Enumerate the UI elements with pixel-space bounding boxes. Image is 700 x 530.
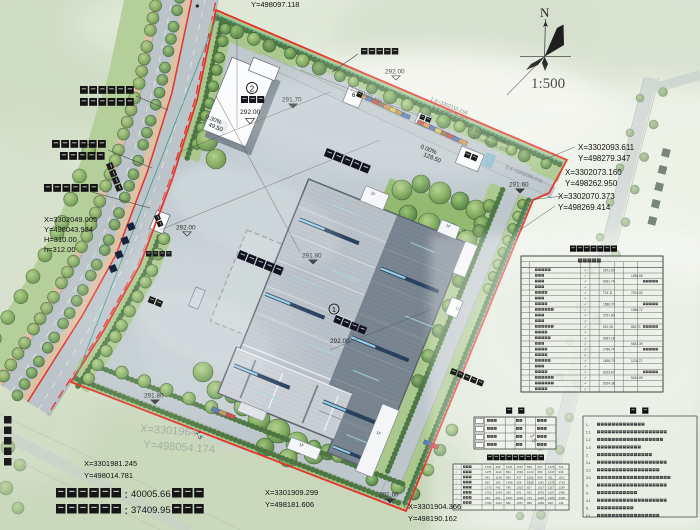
svg-text:180: 180 xyxy=(496,480,501,484)
svg-text:✓: ✓ xyxy=(584,302,587,306)
svg-text:267: 267 xyxy=(538,465,543,469)
svg-text:1101: 1101 xyxy=(559,475,566,479)
svg-text:X=3302073.160: X=3302073.160 xyxy=(565,168,622,177)
svg-text:1: 1 xyxy=(332,307,336,314)
svg-text:956: 956 xyxy=(506,475,511,479)
svg-text:Y=498279.347: Y=498279.347 xyxy=(578,154,631,163)
svg-text:1783: 1783 xyxy=(485,501,492,505)
svg-text:○: ○ xyxy=(456,475,458,479)
svg-text:652: 652 xyxy=(527,491,532,495)
svg-text:1070: 1070 xyxy=(538,491,545,495)
svg-text:1716: 1716 xyxy=(559,480,566,484)
svg-text:✓: ✓ xyxy=(584,308,587,312)
svg-text:240: 240 xyxy=(506,491,511,495)
svg-text:742: 742 xyxy=(496,486,501,490)
svg-text:X=3301904.366: X=3301904.366 xyxy=(408,502,461,511)
svg-text:✓: ✓ xyxy=(584,297,587,301)
svg-text:3757.80: 3757.80 xyxy=(603,314,615,318)
svg-text:258: 258 xyxy=(517,480,522,484)
svg-text:341: 341 xyxy=(485,475,490,479)
svg-text:4.: 4. xyxy=(586,491,589,495)
svg-text:1347: 1347 xyxy=(548,470,555,474)
svg-text:1650: 1650 xyxy=(527,475,534,479)
svg-text:4.1: 4.1 xyxy=(586,499,591,503)
svg-text:249: 249 xyxy=(559,470,564,474)
svg-text:1286.68: 1286.68 xyxy=(631,274,643,278)
svg-text:H=310.00: H=310.00 xyxy=(44,235,77,244)
svg-text:X=3302070.373: X=3302070.373 xyxy=(558,192,615,201)
svg-text:○: ○ xyxy=(456,491,458,495)
svg-text:Y=498014.781: Y=498014.781 xyxy=(84,471,133,480)
svg-text:✓: ✓ xyxy=(584,342,587,346)
svg-text:1148: 1148 xyxy=(496,475,503,479)
svg-text:411: 411 xyxy=(548,475,553,479)
svg-text:7204.53: 7204.53 xyxy=(631,291,643,295)
svg-text:○: ○ xyxy=(456,496,458,500)
svg-text:1.2: 1.2 xyxy=(586,438,591,442)
svg-text:✓: ✓ xyxy=(584,331,587,335)
svg-text:1128.72: 1128.72 xyxy=(631,359,643,363)
svg-text:Y=498269.414: Y=498269.414 xyxy=(558,203,611,212)
svg-text:468: 468 xyxy=(496,465,501,469)
svg-text:3.1: 3.1 xyxy=(586,461,591,465)
svg-text:1.3: 1.3 xyxy=(586,446,591,450)
svg-text:✓: ✓ xyxy=(584,274,587,278)
svg-text:✓: ✓ xyxy=(584,268,587,272)
svg-text:963: 963 xyxy=(485,480,490,484)
svg-text:37409.95: 37409.95 xyxy=(131,505,171,516)
svg-text:810: 810 xyxy=(548,501,553,505)
svg-text:796: 796 xyxy=(506,486,511,490)
svg-text:1523: 1523 xyxy=(517,486,524,490)
svg-text:h=312.00: h=312.00 xyxy=(44,245,76,254)
svg-text:291: 291 xyxy=(517,491,522,495)
svg-text:714.11: 714.11 xyxy=(603,291,613,295)
svg-text:6024.38: 6024.38 xyxy=(603,382,615,386)
svg-text:689: 689 xyxy=(538,470,543,474)
svg-text:1586.70: 1586.70 xyxy=(603,302,615,306)
svg-text:1242: 1242 xyxy=(538,480,545,484)
svg-text:890: 890 xyxy=(527,501,532,505)
svg-text:803: 803 xyxy=(506,470,511,474)
svg-text:146: 146 xyxy=(559,501,564,505)
svg-text:682: 682 xyxy=(506,501,511,505)
svg-text:734: 734 xyxy=(527,496,532,500)
svg-text:✓: ✓ xyxy=(584,348,587,352)
svg-text:9453.39: 9453.39 xyxy=(631,342,643,346)
svg-text:599: 599 xyxy=(527,465,532,469)
svg-text:1597: 1597 xyxy=(506,496,513,500)
svg-text:X=3301909.299: X=3301909.299 xyxy=(265,488,318,497)
svg-text:5246.59: 5246.59 xyxy=(631,376,643,380)
svg-text:224: 224 xyxy=(496,496,501,500)
svg-text:3.2: 3.2 xyxy=(586,469,591,473)
svg-text:1726: 1726 xyxy=(485,465,492,469)
svg-text:8233.87: 8233.87 xyxy=(603,370,615,374)
svg-text:✓: ✓ xyxy=(584,285,587,289)
svg-text:5.1: 5.1 xyxy=(586,514,591,518)
svg-text:2.: 2. xyxy=(586,453,589,457)
svg-text:2571.50: 2571.50 xyxy=(603,268,615,272)
svg-text:1.: 1. xyxy=(586,423,589,427)
svg-text:714: 714 xyxy=(559,465,564,469)
svg-text:5.: 5. xyxy=(586,507,589,511)
svg-text:1696.70: 1696.70 xyxy=(603,359,615,363)
svg-text:6967.18: 6967.18 xyxy=(603,336,615,340)
svg-text:✓: ✓ xyxy=(584,376,587,380)
svg-text:○: ○ xyxy=(456,486,458,490)
svg-text:1665: 1665 xyxy=(527,480,534,484)
svg-text:817: 817 xyxy=(527,486,532,490)
svg-text:1287: 1287 xyxy=(559,486,566,490)
svg-text:X=3302049.005: X=3302049.005 xyxy=(44,215,97,224)
svg-text:✓: ✓ xyxy=(584,387,587,391)
svg-text:✓: ✓ xyxy=(584,336,587,340)
svg-text:○: ○ xyxy=(456,470,458,474)
svg-text:1.1: 1.1 xyxy=(586,431,591,435)
svg-text:Y=498190.162: Y=498190.162 xyxy=(408,514,457,523)
svg-text:1273: 1273 xyxy=(548,480,555,484)
svg-text:2: 2 xyxy=(250,85,255,94)
svg-text:1113: 1113 xyxy=(496,470,502,474)
svg-text:✓: ✓ xyxy=(584,314,587,318)
svg-text:Y=498181.606: Y=498181.606 xyxy=(265,500,314,509)
svg-text:437: 437 xyxy=(517,475,522,479)
svg-text:800: 800 xyxy=(538,475,543,479)
svg-text:1775: 1775 xyxy=(485,486,492,490)
svg-text:✓: ✓ xyxy=(584,280,587,284)
svg-text:1317: 1317 xyxy=(538,486,545,490)
svg-text:863.71: 863.71 xyxy=(631,325,641,329)
svg-text:1531: 1531 xyxy=(506,465,513,469)
svg-text:1068.72: 1068.72 xyxy=(631,308,643,312)
svg-text:1276: 1276 xyxy=(548,465,555,469)
svg-text:Y=498097.118: Y=498097.118 xyxy=(251,0,299,9)
svg-text:✓: ✓ xyxy=(584,370,587,374)
svg-text:1460: 1460 xyxy=(559,491,566,495)
svg-text:3.: 3. xyxy=(586,484,589,488)
svg-text:○: ○ xyxy=(456,480,458,484)
svg-text:1697: 1697 xyxy=(517,465,524,469)
svg-text:1468: 1468 xyxy=(506,480,513,484)
svg-text:Y=498043.984: Y=498043.984 xyxy=(44,225,93,234)
svg-text:233: 233 xyxy=(485,496,490,500)
svg-text:✓: ✓ xyxy=(584,353,587,357)
svg-text:1425: 1425 xyxy=(538,496,545,500)
svg-text:1019: 1019 xyxy=(527,470,534,474)
svg-text:X=3301981.245: X=3301981.245 xyxy=(84,459,137,468)
svg-text:1117: 1117 xyxy=(548,486,554,490)
svg-text:✓: ✓ xyxy=(584,365,587,369)
svg-text:✓: ✓ xyxy=(584,319,587,323)
svg-text:1732: 1732 xyxy=(485,491,492,495)
svg-text:1034: 1034 xyxy=(496,491,503,495)
svg-text:912.28: 912.28 xyxy=(603,325,613,329)
svg-text:1536: 1536 xyxy=(517,496,524,500)
svg-text:1567: 1567 xyxy=(517,501,524,505)
svg-text:1283: 1283 xyxy=(548,496,555,500)
svg-text:292.00: 292.00 xyxy=(240,109,261,116)
svg-text:1175: 1175 xyxy=(485,470,492,474)
svg-text:1495: 1495 xyxy=(559,496,566,500)
svg-text:✓: ✓ xyxy=(584,382,587,386)
svg-text:6091.74: 6091.74 xyxy=(603,280,615,284)
svg-text:X=3302093.611: X=3302093.611 xyxy=(578,143,635,152)
svg-text:1012: 1012 xyxy=(496,501,503,505)
svg-text:40005.66: 40005.66 xyxy=(131,489,171,500)
svg-text:1593: 1593 xyxy=(517,470,524,474)
svg-text:1469: 1469 xyxy=(538,501,545,505)
svg-text:○: ○ xyxy=(456,465,458,469)
svg-text:3.3: 3.3 xyxy=(586,476,591,480)
svg-text:1527: 1527 xyxy=(548,491,555,495)
svg-text:✓: ✓ xyxy=(584,291,587,295)
svg-text:✓: ✓ xyxy=(584,359,587,363)
svg-text:1788.74: 1788.74 xyxy=(603,348,615,352)
svg-text:Y=498262.950: Y=498262.950 xyxy=(565,179,618,188)
svg-text:✓: ✓ xyxy=(584,325,587,329)
